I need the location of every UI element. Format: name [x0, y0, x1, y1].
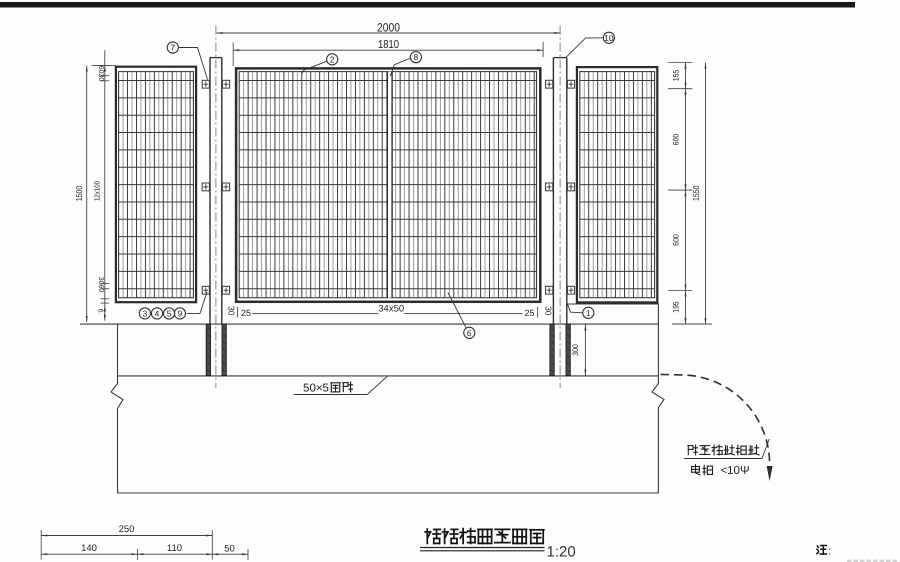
- svg-text:6030: 6030: [97, 66, 104, 82]
- svg-text:4: 4: [155, 309, 160, 319]
- svg-text:8: 8: [414, 52, 419, 62]
- svg-text:10: 10: [604, 33, 614, 43]
- svg-text:110: 110: [167, 543, 182, 554]
- svg-text:<10Ψ: <10Ψ: [720, 465, 749, 477]
- svg-text:5: 5: [167, 309, 172, 319]
- svg-text:195: 195: [671, 301, 680, 313]
- svg-text:30: 30: [543, 306, 553, 316]
- svg-text:155: 155: [671, 69, 680, 81]
- svg-text:2: 2: [330, 54, 335, 64]
- svg-text::: :: [828, 546, 831, 558]
- svg-text:34x50: 34x50: [378, 304, 404, 315]
- svg-text:7: 7: [170, 43, 175, 53]
- svg-text:50: 50: [224, 544, 235, 555]
- svg-text:2000: 2000: [377, 20, 400, 34]
- svg-text:3: 3: [143, 309, 148, 319]
- svg-text:12x100: 12x100: [93, 181, 102, 201]
- svg-text:50×5: 50×5: [303, 383, 329, 395]
- svg-text:25: 25: [524, 308, 534, 318]
- svg-text:1:20: 1:20: [547, 544, 576, 561]
- svg-text:6.: 6.: [97, 309, 104, 315]
- svg-text:1: 1: [586, 308, 591, 318]
- svg-text:3060: 3060: [97, 277, 104, 293]
- svg-text:25: 25: [241, 308, 251, 318]
- svg-text:300: 300: [571, 344, 580, 356]
- svg-text:140: 140: [81, 543, 97, 554]
- svg-text:1810: 1810: [378, 39, 399, 51]
- svg-text:6: 6: [467, 328, 472, 338]
- svg-text:1500: 1500: [74, 186, 84, 202]
- svg-text:30: 30: [226, 306, 236, 316]
- svg-text:9: 9: [178, 309, 183, 319]
- svg-text:600: 600: [671, 234, 680, 246]
- svg-text:1550: 1550: [691, 185, 701, 201]
- svg-text:250: 250: [119, 524, 135, 535]
- svg-text:600: 600: [671, 133, 680, 145]
